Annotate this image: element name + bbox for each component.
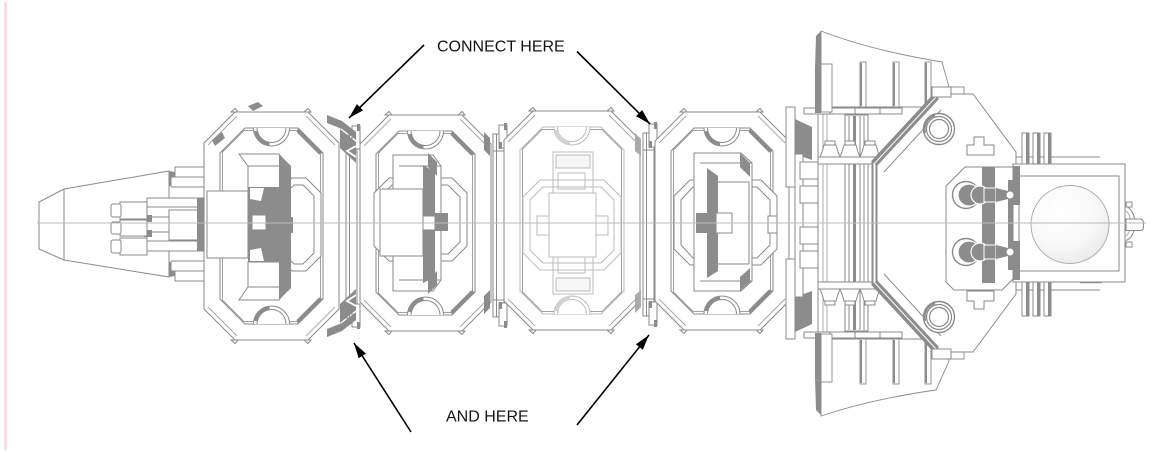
- svg-text:CONNECT HERE: CONNECT HERE: [437, 39, 565, 56]
- svg-text:AND HERE: AND HERE: [446, 409, 529, 426]
